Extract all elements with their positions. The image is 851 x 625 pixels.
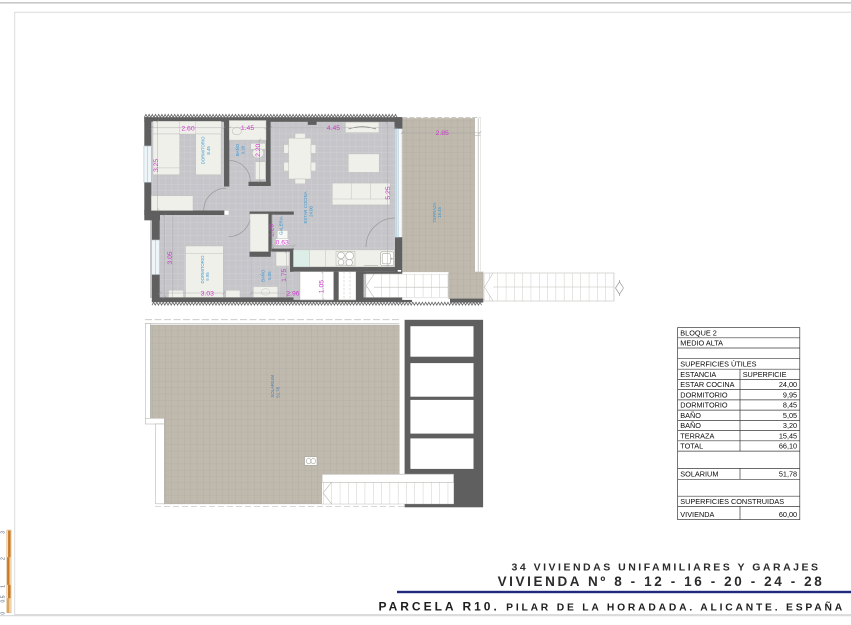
svg-text:SUPERFICIES ÚTILES: SUPERFICIES ÚTILES	[680, 360, 756, 369]
svg-text:9,95: 9,95	[783, 390, 797, 399]
svg-text:BLOQUE 2: BLOQUE 2	[680, 328, 717, 337]
svg-text:0.63: 0.63	[276, 239, 289, 246]
svg-text:VIVIENDA Nº 8 - 12 - 16 - 20 -: VIVIENDA Nº 8 - 12 - 16 - 20 - 24 - 28	[498, 574, 825, 589]
svg-text:DORMITORIO: DORMITORIO	[201, 136, 206, 165]
svg-text:24.00: 24.00	[308, 206, 313, 217]
svg-text:9.95: 9.95	[205, 272, 210, 281]
svg-text:60,00: 60,00	[779, 510, 797, 519]
svg-text:SUPERFICIE: SUPERFICIE	[743, 370, 787, 379]
svg-text:3.25: 3.25	[153, 159, 160, 172]
svg-text:3: 3	[1, 531, 7, 534]
svg-text:SOLARIUM: SOLARIUM	[680, 470, 718, 479]
svg-text:TERRAZA: TERRAZA	[432, 202, 437, 222]
svg-text:4.45: 4.45	[327, 125, 340, 132]
svg-text:1.20: 1.20	[268, 224, 275, 237]
svg-text:2.96: 2.96	[286, 290, 299, 297]
svg-text:GALERIA: GALERIA	[279, 216, 284, 235]
svg-text:5.25: 5.25	[385, 186, 392, 199]
svg-text:BAÑO: BAÑO	[261, 269, 266, 282]
svg-text:24,00: 24,00	[779, 380, 797, 389]
svg-text:5,05: 5,05	[783, 411, 797, 420]
svg-text:15.45: 15.45	[437, 206, 442, 217]
svg-text:5.05: 5.05	[267, 271, 272, 280]
svg-text:1.75: 1.75	[281, 268, 288, 281]
svg-text:0.5: 0.5	[1, 595, 7, 602]
svg-text:SUPERFICIES CONSTRUIDAS: SUPERFICIES CONSTRUIDAS	[680, 497, 784, 506]
svg-text:BAÑO: BAÑO	[235, 143, 240, 156]
svg-text:1.05: 1.05	[318, 280, 325, 293]
svg-text:3.03: 3.03	[201, 290, 214, 297]
svg-text:BAÑO: BAÑO	[680, 421, 701, 430]
svg-text:1.45: 1.45	[241, 125, 254, 132]
svg-text:ESTANCIA: ESTANCIA	[680, 370, 716, 379]
svg-text:MEDIO ALTA: MEDIO ALTA	[680, 339, 723, 348]
svg-text:DORMITORIO: DORMITORIO	[680, 390, 728, 399]
svg-text:34 VIVIENDAS UNIFAMILIARES Y G: 34 VIVIENDAS UNIFAMILIARES Y GARAJES	[512, 562, 821, 574]
svg-text:VIVIENDA: VIVIENDA	[680, 510, 714, 519]
svg-text:8,45: 8,45	[783, 401, 797, 410]
svg-text:0: 0	[1, 612, 7, 615]
svg-text:51.78: 51.78	[275, 386, 280, 397]
svg-text:8.45: 8.45	[206, 146, 211, 155]
svg-text:TERRAZA: TERRAZA	[680, 431, 714, 440]
svg-text:PARCELA R10. PILAR DE LA HORAD: PARCELA R10. PILAR DE LA HORADADA. ALICA…	[378, 600, 845, 614]
svg-text:ESTAR COCINA: ESTAR COCINA	[680, 380, 734, 389]
svg-text:2.85: 2.85	[436, 130, 449, 137]
svg-text:3.05: 3.05	[167, 251, 174, 264]
svg-text:3,20: 3,20	[783, 421, 797, 430]
svg-text:DORMITORIO: DORMITORIO	[680, 401, 728, 410]
svg-text:15,45: 15,45	[779, 431, 797, 440]
svg-text:2.20: 2.20	[255, 143, 262, 156]
svg-text:1: 1	[1, 585, 7, 588]
svg-text:BAÑO: BAÑO	[680, 411, 701, 420]
svg-text:2: 2	[1, 557, 7, 560]
svg-text:TOTAL: TOTAL	[680, 442, 703, 451]
svg-text:51,78: 51,78	[779, 470, 797, 479]
svg-text:3.20: 3.20	[241, 145, 246, 154]
svg-text:66,10: 66,10	[779, 442, 797, 451]
svg-text:2.60: 2.60	[181, 125, 194, 132]
